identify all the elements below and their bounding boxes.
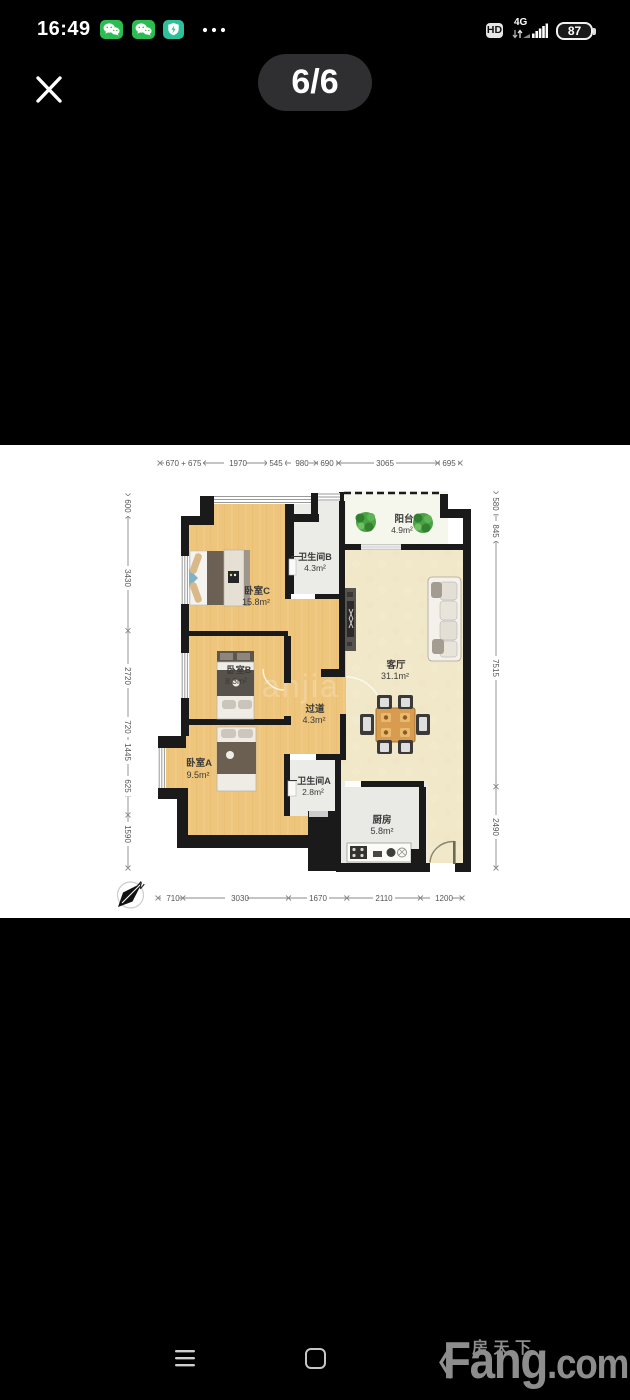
svg-text:9.5m²: 9.5m² — [186, 770, 209, 780]
svg-text:1200: 1200 — [435, 894, 453, 903]
svg-text:3030: 3030 — [231, 894, 249, 903]
svg-text:15.8m²: 15.8m² — [242, 597, 270, 607]
svg-text:4.3m²: 4.3m² — [302, 715, 325, 725]
svg-text:1590: 1590 — [123, 825, 132, 843]
svg-text:3430: 3430 — [123, 569, 132, 587]
svg-text:31.1m²: 31.1m² — [381, 671, 409, 681]
svg-text:厨房: 厨房 — [372, 814, 391, 826]
svg-text:5.8m²: 5.8m² — [370, 826, 393, 836]
svg-text:600: 600 — [123, 499, 132, 513]
svg-text:卧室B: 卧室B — [227, 664, 252, 675]
svg-text:2.8m²: 2.8m² — [302, 787, 324, 797]
svg-text:7515: 7515 — [491, 659, 500, 677]
svg-text:2720: 2720 — [123, 667, 132, 685]
svg-text:2490: 2490 — [491, 818, 500, 836]
svg-text:980: 980 — [295, 459, 309, 468]
svg-text:客厅: 客厅 — [385, 659, 406, 671]
svg-text:720: 720 — [123, 720, 132, 734]
svg-text:卧室C: 卧室C — [244, 585, 270, 597]
svg-text:卧室A: 卧室A — [186, 757, 212, 769]
svg-text:4.3m²: 4.3m² — [304, 563, 326, 573]
svg-text:580: 580 — [491, 497, 500, 511]
svg-text:过道: 过道 — [305, 703, 325, 715]
svg-text:3065: 3065 — [376, 459, 394, 468]
svg-text:845: 845 — [491, 524, 500, 538]
svg-text:545: 545 — [269, 459, 283, 468]
svg-text:690: 690 — [320, 459, 334, 468]
svg-text:1970: 1970 — [229, 459, 247, 468]
svg-text:710: 710 — [166, 894, 180, 903]
svg-text:阳台: 阳台 — [394, 513, 414, 525]
svg-text:卫生间B: 卫生间B — [298, 551, 332, 562]
svg-text:2110: 2110 — [375, 894, 393, 903]
svg-text:8.3m²: 8.3m² — [225, 676, 247, 686]
svg-text:4.9m²: 4.9m² — [391, 525, 413, 535]
svg-text:1445: 1445 — [123, 743, 132, 761]
svg-text:卫生间A: 卫生间A — [297, 775, 331, 786]
svg-text:670 + 675: 670 + 675 — [166, 459, 202, 468]
svg-text:1670: 1670 — [309, 894, 327, 903]
svg-text:625: 625 — [123, 779, 132, 793]
svg-text:695: 695 — [442, 459, 456, 468]
